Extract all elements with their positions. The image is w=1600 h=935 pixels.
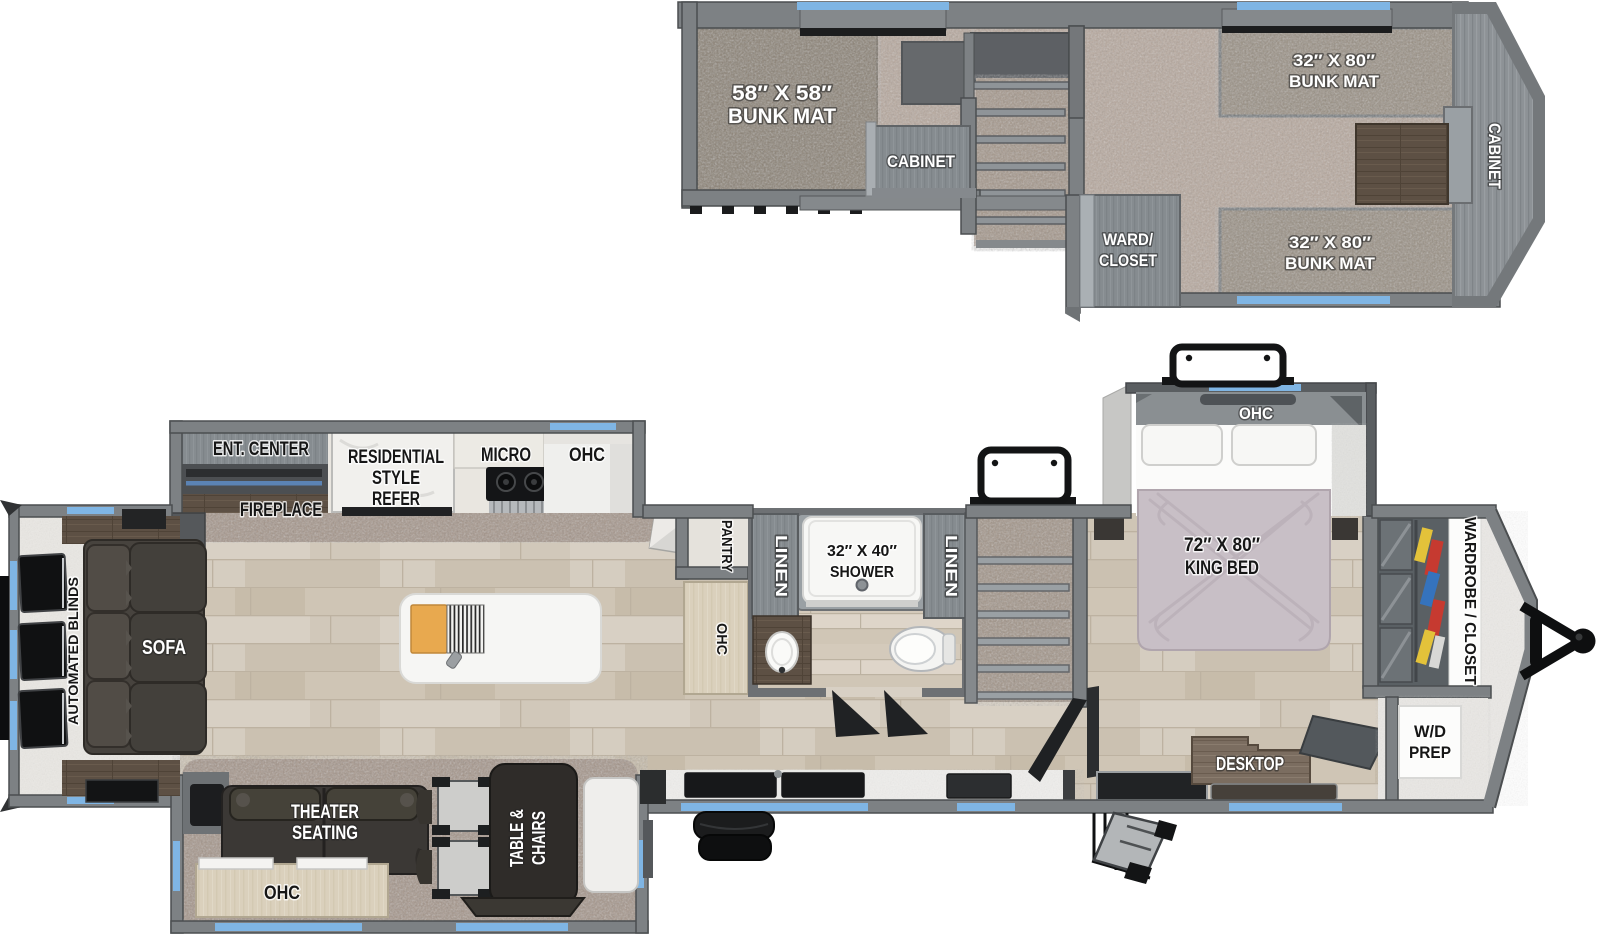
svg-text:TABLE &: TABLE & — [507, 809, 527, 867]
svg-text:58″ X 58″: 58″ X 58″ — [732, 82, 832, 105]
svg-text:OHC: OHC — [1239, 404, 1273, 423]
svg-text:OHC: OHC — [713, 623, 730, 655]
svg-text:32″ X 80″: 32″ X 80″ — [1289, 233, 1371, 252]
svg-text:STYLE: STYLE — [372, 468, 420, 489]
svg-text:FIREPLACE: FIREPLACE — [240, 500, 322, 521]
svg-text:MICRO: MICRO — [481, 445, 531, 466]
svg-text:LINEN: LINEN — [942, 535, 959, 597]
svg-text:CABINET: CABINET — [887, 152, 956, 171]
svg-text:BUNK MAT: BUNK MAT — [1289, 72, 1380, 91]
svg-text:KING BED: KING BED — [1185, 558, 1259, 579]
svg-text:PREP: PREP — [1409, 743, 1451, 762]
svg-text:DESKTOP: DESKTOP — [1216, 754, 1284, 774]
svg-text:ENT. CENTER: ENT. CENTER — [213, 439, 309, 460]
svg-text:BUNK MAT: BUNK MAT — [1285, 254, 1376, 273]
svg-text:PANTRY: PANTRY — [718, 520, 735, 572]
svg-text:THEATER: THEATER — [291, 802, 359, 823]
svg-text:REFER: REFER — [372, 489, 420, 510]
svg-text:SOFA: SOFA — [142, 637, 186, 659]
svg-text:CABINET: CABINET — [1485, 123, 1504, 190]
svg-text:CHAIRS: CHAIRS — [529, 811, 549, 865]
svg-text:OHC: OHC — [264, 883, 300, 904]
svg-text:W/D: W/D — [1414, 722, 1446, 741]
svg-text:CLOSET: CLOSET — [1099, 251, 1158, 270]
svg-text:OHC: OHC — [569, 445, 605, 466]
svg-text:WARD/: WARD/ — [1103, 230, 1153, 249]
svg-text:LINEN: LINEN — [772, 535, 789, 597]
svg-text:SEATING: SEATING — [292, 823, 358, 844]
svg-text:32″ X 40″: 32″ X 40″ — [827, 543, 897, 560]
svg-text:AUTOMATED BLINDS: AUTOMATED BLINDS — [66, 577, 81, 725]
svg-text:72″ X 80″: 72″ X 80″ — [1184, 535, 1260, 556]
svg-text:SHOWER: SHOWER — [830, 564, 894, 581]
svg-text:WARDROBE / CLOSET: WARDROBE / CLOSET — [1461, 517, 1478, 685]
svg-text:RESIDENTIAL: RESIDENTIAL — [348, 447, 444, 468]
svg-text:BUNK MAT: BUNK MAT — [728, 105, 836, 128]
svg-text:32″ X 80″: 32″ X 80″ — [1293, 51, 1375, 70]
